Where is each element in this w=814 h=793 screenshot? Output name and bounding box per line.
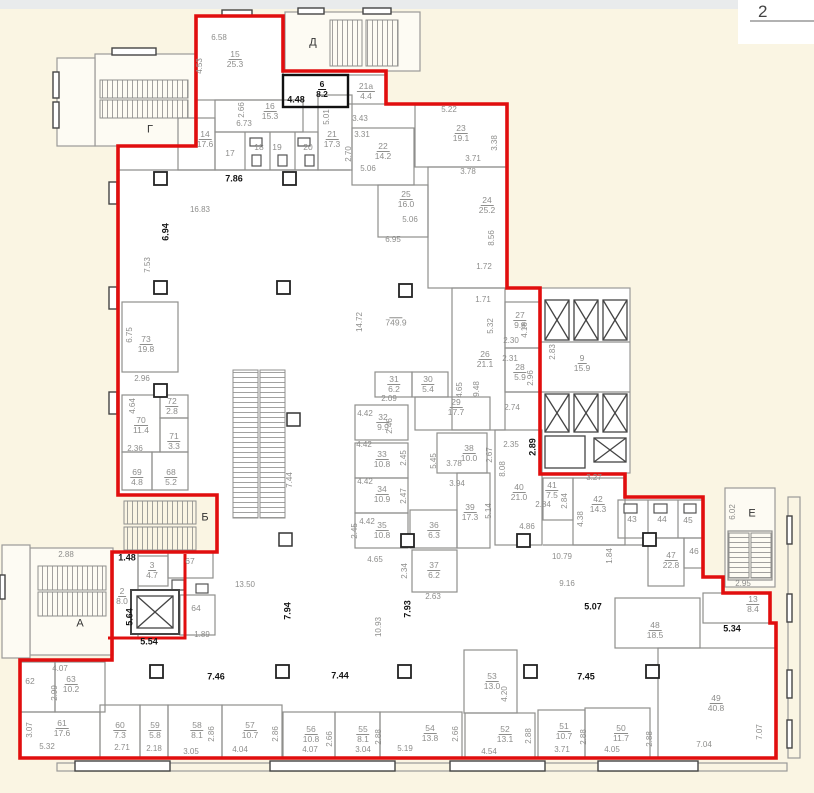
dimension-label: 4.42	[357, 478, 373, 486]
dimension-label: 2.70	[345, 146, 353, 162]
dimension-label: 2.84	[535, 501, 551, 509]
room-label: 2516.0	[398, 190, 415, 208]
dimension-label: 9.48	[473, 381, 481, 397]
room-label: 5011.7	[613, 724, 629, 742]
labels-layer: 6.584.532.666.735.013.433.312.705.064.48…	[0, 0, 814, 793]
dimension-label: 7.94	[284, 602, 293, 620]
room-label: 685.2	[164, 468, 177, 486]
room-number-label: 20	[303, 143, 312, 152]
dimension-label: 3.78	[446, 460, 462, 468]
dimension-label: 7.44	[286, 472, 294, 488]
room-label: 749.9	[385, 317, 406, 327]
dimension-label: 3.31	[354, 131, 370, 139]
section-letter: Г	[147, 125, 153, 136]
dimension-label: 3.71	[554, 746, 570, 754]
dimension-label: 2.88	[525, 728, 533, 744]
dimension-label: 3.43	[352, 115, 368, 123]
dimension-label: 2.45	[351, 523, 359, 539]
room-label: 5710.7	[242, 721, 259, 739]
room-label: 3810.0	[461, 444, 478, 462]
dimension-label: 5.32	[39, 743, 55, 751]
room-label: 329.9	[376, 413, 389, 431]
dimension-label: 5.45	[430, 453, 438, 469]
room-label: 2319.1	[453, 124, 470, 142]
dimension-label: 7.46	[207, 673, 225, 682]
room-label: 6117.6	[54, 719, 71, 737]
dimension-label: 7.07	[756, 724, 764, 740]
dimension-label: 8.56	[488, 230, 496, 246]
room-number-label: 62	[25, 677, 34, 686]
dimension-label: 13.50	[235, 581, 255, 589]
room-label: 1417.6	[197, 130, 214, 148]
dimension-label: 5.54	[140, 638, 158, 647]
room-label: 2621.1	[477, 350, 494, 368]
dimension-label: 2.67	[486, 447, 494, 463]
dimension-label: 2.35	[503, 441, 519, 449]
room-number-label: 44	[657, 515, 666, 524]
dimension-label: 5.19	[397, 745, 413, 753]
page-number: 2	[758, 2, 767, 22]
dimension-label: 5.07	[584, 603, 602, 612]
dimension-label: 3.04	[355, 746, 371, 754]
room-label: 5110.7	[556, 722, 573, 740]
dimension-label: 3.07	[26, 722, 34, 738]
dimension-label: 1.71	[475, 296, 491, 304]
dimension-label: 5.06	[360, 165, 376, 173]
room-label: 6310.2	[63, 675, 80, 693]
dimension-label: 5.32	[487, 318, 495, 334]
dimension-label: 4.48	[287, 96, 305, 105]
dimension-label: 2.34	[401, 563, 409, 579]
room-label: 4214.3	[590, 495, 607, 513]
dimension-label: 4.86	[519, 523, 535, 531]
room-number-label: 17	[225, 149, 234, 158]
dimension-label: 6.58	[211, 34, 227, 42]
dimension-label: 3.71	[465, 155, 481, 163]
room-label: 4940.8	[708, 694, 725, 712]
dimension-label: 14.72	[356, 312, 364, 332]
room-label: 722.8	[165, 397, 178, 415]
dimension-label: 5.06	[402, 216, 418, 224]
dimension-label: 4.65	[367, 556, 383, 564]
dimension-label: 2.86	[208, 726, 216, 742]
room-label: 5413.8	[422, 724, 439, 742]
dimension-label: 5.14	[485, 503, 493, 519]
dimension-label: 7.53	[144, 257, 152, 273]
room-label: 279.8	[513, 311, 526, 329]
dimension-label: 2.84	[561, 493, 569, 509]
room-label: 21а4.4	[357, 82, 375, 100]
dimension-label: 16.83	[190, 206, 210, 214]
dimension-label: 2.88	[580, 729, 588, 745]
dimension-label: 2.88	[646, 731, 654, 747]
dimension-label: 4.42	[357, 410, 373, 418]
room-label: 138.4	[746, 595, 759, 613]
room-label: 2214.2	[375, 142, 392, 160]
room-label: 285.9	[513, 363, 526, 381]
room-label: 1525.3	[227, 50, 244, 68]
dimension-label: 5.34	[723, 625, 741, 634]
room-label: 4722.8	[663, 551, 680, 569]
room-label: 34.7	[146, 561, 158, 579]
dimension-label: 5.01	[323, 109, 331, 125]
dimension-label: 2.66	[326, 731, 334, 747]
dimension-label: 1.89	[194, 631, 210, 639]
room-label: 3917.3	[462, 503, 479, 521]
dimension-label: 2.99	[51, 685, 59, 701]
room-label: 588.1	[190, 721, 203, 739]
dimension-label: 4.38	[577, 511, 585, 527]
room-label: 607.3	[113, 721, 126, 739]
dimension-label: 6.75	[126, 327, 134, 343]
room-label: 417.5	[545, 481, 558, 499]
dimension-label: 4.04	[232, 746, 248, 754]
dimension-label: 2.09	[381, 395, 397, 403]
dimension-label: 2.66	[452, 726, 460, 742]
section-letter: Е	[748, 509, 755, 520]
dimension-label: 3.05	[183, 748, 199, 756]
dimension-label: 2.18	[146, 745, 162, 753]
room-number-label: 43	[627, 515, 636, 524]
dimension-label: 6.94	[162, 223, 171, 241]
dimension-label: 2.45	[400, 450, 408, 466]
section-letter: Д	[309, 38, 316, 49]
room-label: 2917.7	[448, 398, 465, 416]
room-label: 4818.5	[647, 621, 664, 639]
dimension-label: 7.44	[331, 672, 349, 681]
room-label: 5213.1	[497, 725, 514, 743]
dimension-label: 3.94	[449, 480, 465, 488]
dimension-label: 2.36	[127, 445, 143, 453]
room-number-label: 18	[254, 143, 263, 152]
room-label: 4021.0	[511, 483, 528, 501]
dimension-label: 2.96	[527, 370, 535, 386]
room-label: 376.2	[427, 561, 440, 579]
dimension-label: 7.45	[577, 673, 595, 682]
dimension-label: 6.73	[236, 120, 252, 128]
room-label: 2117.3	[324, 130, 341, 148]
dimension-label: 2.95	[735, 580, 751, 588]
room-label: 5610.8	[303, 725, 320, 743]
room-number-label: 45	[683, 516, 692, 525]
dimension-label: 4.05	[604, 746, 620, 754]
room-label: 366.3	[427, 521, 440, 539]
dimension-label: 5.64	[126, 608, 135, 626]
room-number-label: 64	[191, 604, 200, 613]
dimension-label: 10.93	[375, 617, 383, 637]
dimension-label: 2.74	[504, 404, 520, 412]
dimension-label: 2.88	[58, 551, 74, 559]
floor-plan: 6.584.532.666.735.013.433.312.705.064.48…	[0, 0, 814, 793]
dimension-label: 3.38	[491, 135, 499, 151]
dimension-label: 1.84	[606, 548, 614, 564]
dimension-label: 2.88	[375, 729, 383, 745]
section-letter: Б	[201, 513, 208, 524]
room-number-label: 19	[272, 143, 281, 152]
dimension-label: 2.66	[238, 102, 246, 118]
room-label: 3510.8	[374, 521, 391, 539]
dimension-label: 8.08	[499, 461, 507, 477]
dimension-label: 4.07	[302, 746, 318, 754]
dimension-label: 2.83	[549, 344, 557, 360]
dimension-label: 2.71	[114, 744, 130, 752]
room-label: 3310.8	[374, 450, 391, 468]
room-label: 595.8	[148, 721, 161, 739]
room-label: 316.2	[387, 375, 400, 393]
dimension-label: 2.86	[272, 726, 280, 742]
dimension-label: 2.89	[529, 438, 538, 456]
dimension-label: 10.79	[552, 553, 572, 561]
dimension-label: 2.47	[400, 488, 408, 504]
dimension-label: 7.86	[225, 175, 243, 184]
dimension-label: 6.02	[729, 504, 737, 520]
room-number-label: 46	[689, 547, 698, 556]
room-label: 5313.0	[484, 672, 501, 690]
room-label: 1615.3	[262, 102, 279, 120]
dimension-label: 2.30	[503, 337, 519, 345]
room-label: 3410.9	[374, 485, 391, 503]
dimension-label: 4.42	[356, 441, 372, 449]
room-label: 915.9	[574, 354, 591, 372]
dimension-label: 3.78	[460, 168, 476, 176]
dimension-label: 2.96	[134, 375, 150, 383]
dimension-label: 4.64	[129, 398, 137, 414]
room-label: 694.8	[130, 468, 143, 486]
dimension-label: 4.07	[52, 665, 68, 673]
dimension-label: 7.93	[404, 600, 413, 618]
dimension-label: 4.42	[359, 518, 375, 526]
dimension-label: 2.63	[425, 593, 441, 601]
dimension-label: 1.48	[118, 554, 136, 563]
dimension-label: 7.04	[696, 741, 712, 749]
room-number-label: 67	[185, 557, 194, 566]
room-label: 2425.2	[479, 196, 496, 214]
room-label: 7011.4	[133, 416, 149, 434]
dimension-label: 4.20	[501, 686, 509, 702]
dimension-label: 3.27	[586, 474, 602, 482]
room-label: 68.2	[316, 80, 328, 98]
room-label: 28.0	[116, 587, 128, 605]
room-label: 305.4	[421, 375, 434, 393]
dimension-label: 4.53	[196, 58, 204, 74]
dimension-label: 6.95	[385, 236, 401, 244]
room-label: 713.3	[167, 432, 180, 450]
dimension-label: 1.72	[476, 263, 492, 271]
room-label: 558.1	[356, 725, 369, 743]
section-letter: А	[76, 619, 83, 630]
dimension-label: 4.65	[456, 382, 464, 398]
dimension-label: 4.54	[481, 748, 497, 756]
room-label: 7319.8	[138, 335, 155, 353]
dimension-label: 5.22	[441, 106, 457, 114]
dimension-label: 9.16	[559, 580, 575, 588]
